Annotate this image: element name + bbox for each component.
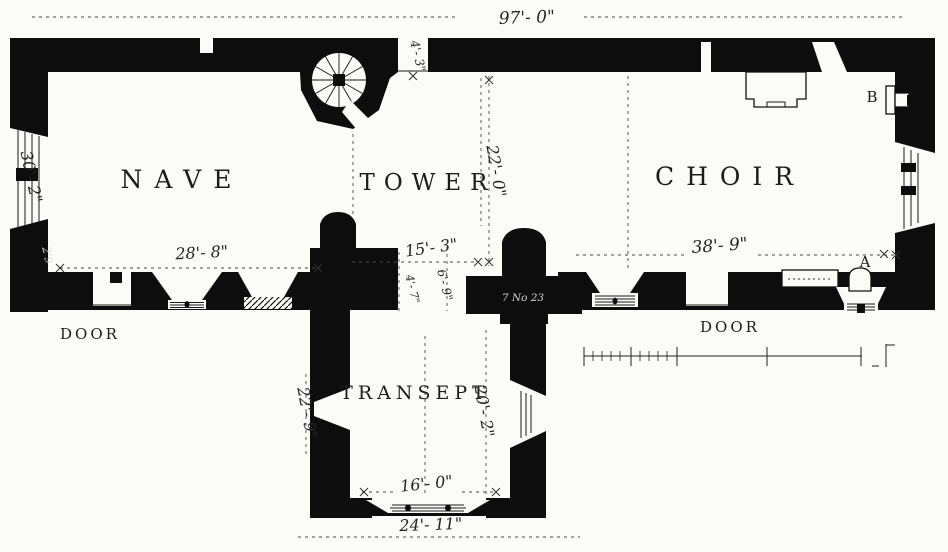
sw-crossing-pier [310, 248, 398, 310]
dim-transept-outer-width: 24'- 11" [398, 514, 463, 535]
nave-south-window-2-hatch [244, 297, 292, 309]
choir-label: CHOIR [655, 162, 805, 191]
niche-b-cap [907, 95, 916, 106]
dim-choir-length: 38'- 9" [691, 234, 748, 258]
east-window-transom [901, 163, 916, 172]
nave-label: NAVE [121, 165, 244, 194]
church-floor-plan: NAVE TOWER CHOIR TRANSEPT DOOR DOOR A B … [0, 0, 948, 552]
nave-door-jamb [110, 272, 122, 283]
nave-north-putlog [200, 38, 213, 53]
choir-north-slot [701, 42, 711, 72]
transept-label: TRANSEPT [340, 382, 490, 404]
niche-b-jamb [886, 86, 895, 114]
tower-label: TOWER [360, 170, 497, 196]
dim-nave-length: 28'- 8" [174, 242, 229, 264]
nave-door-label: DOOR [60, 325, 120, 343]
east-window-transom [901, 186, 916, 195]
choir-door-label: DOOR [700, 318, 760, 336]
pier-note: 7 No 23 [502, 292, 545, 304]
floor-plan-sheet: NAVE TOWER CHOIR TRANSEPT DOOR DOOR A B … [0, 0, 948, 552]
dim-overall-length: 97'- 0" [498, 7, 555, 29]
piscina-niche [849, 268, 871, 291]
niche-b-recess [895, 93, 909, 107]
spiral-stair-newel [333, 74, 345, 86]
transept-window-mullion [405, 505, 411, 512]
choir-south-door [686, 272, 728, 306]
ref-point-a: A [859, 253, 871, 271]
north-wall-east [428, 38, 935, 72]
piscina-drain [857, 304, 865, 313]
choir-window-mullion [613, 298, 618, 305]
nave-window-mullion [185, 301, 190, 308]
se-crossing-pier-top [502, 228, 546, 278]
transept-window-mullion [445, 505, 451, 512]
ref-point-b: B [866, 88, 877, 106]
